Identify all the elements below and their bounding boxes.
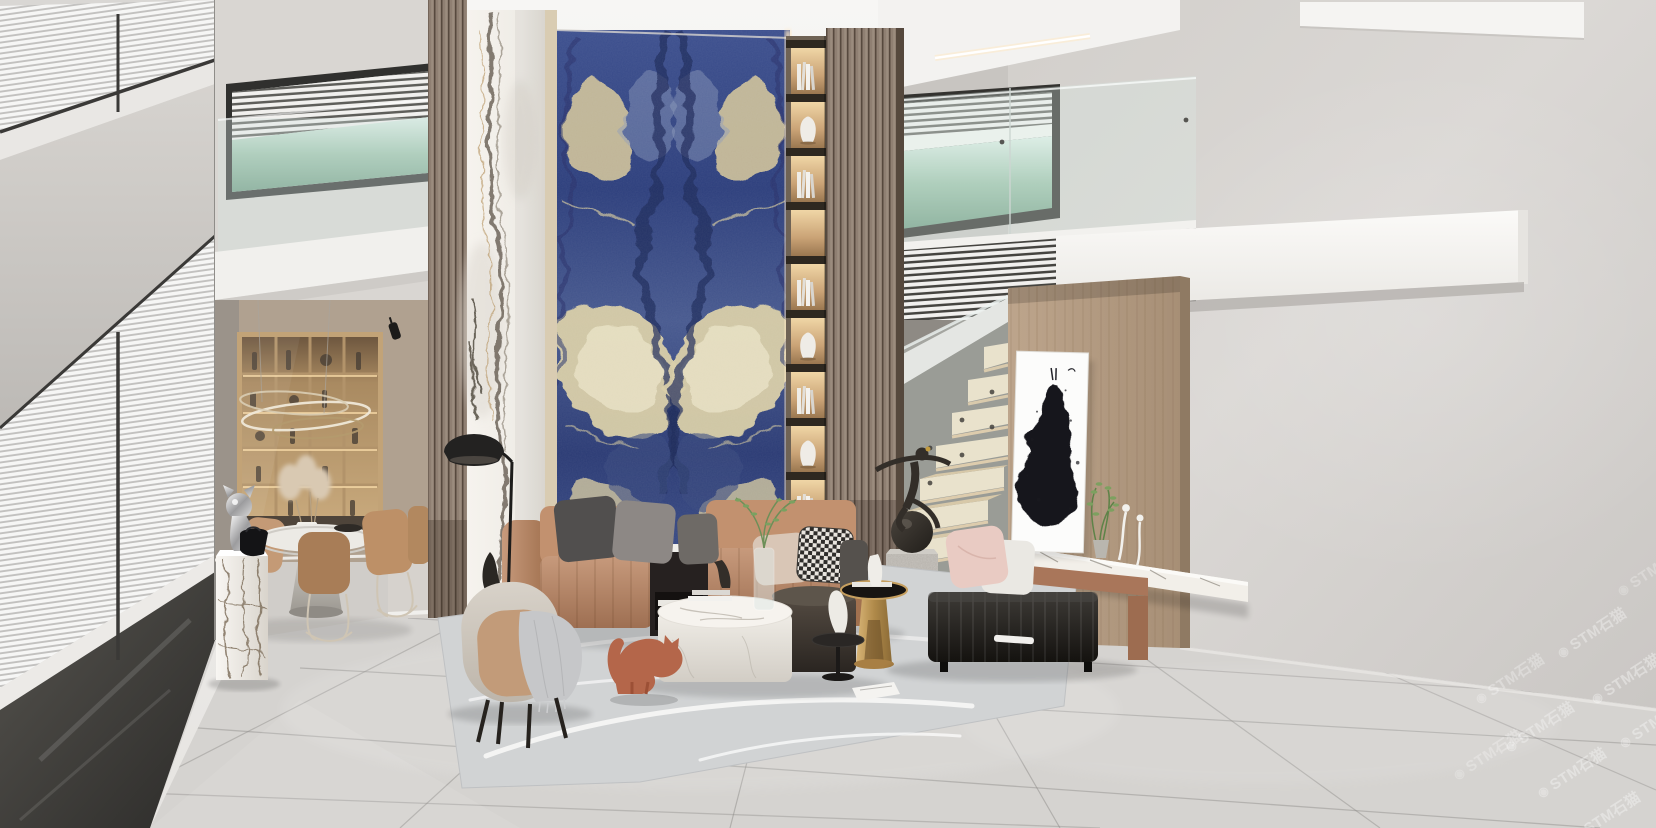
table-foot	[289, 606, 343, 618]
pillow-gray	[611, 499, 676, 564]
slat-lower-shade	[428, 520, 467, 618]
lamp-inner-glow	[450, 456, 498, 464]
tray-base	[822, 673, 854, 681]
black-handbag	[240, 527, 268, 556]
beam-end-face	[1518, 210, 1528, 284]
blue-marble-feature-wall	[555, 30, 791, 560]
sodalite-grain	[557, 30, 790, 560]
dining-chair-far	[408, 506, 430, 564]
interior-render: ◉STM石猫 ◉STM石猫 ◉STM石猫 ◉STM石猫 ◉STM石猫 ◉STM石…	[0, 0, 1656, 828]
tray-top	[812, 633, 864, 647]
table-bowl	[334, 524, 362, 532]
pillow-charcoal	[553, 495, 621, 563]
armchair-shadow	[448, 704, 592, 724]
bench-channels	[928, 592, 1098, 662]
artwork-ink-dress	[1011, 351, 1094, 559]
backlit-bookshelf	[786, 36, 830, 550]
bench-wood-leg	[1128, 596, 1148, 660]
scene-graphics	[0, 0, 1656, 828]
glass-vase	[754, 548, 774, 610]
shelf-niches	[791, 48, 825, 526]
left-mezzanine	[215, 0, 448, 312]
pillow-slate	[677, 513, 720, 565]
cat-shadow	[610, 694, 678, 706]
